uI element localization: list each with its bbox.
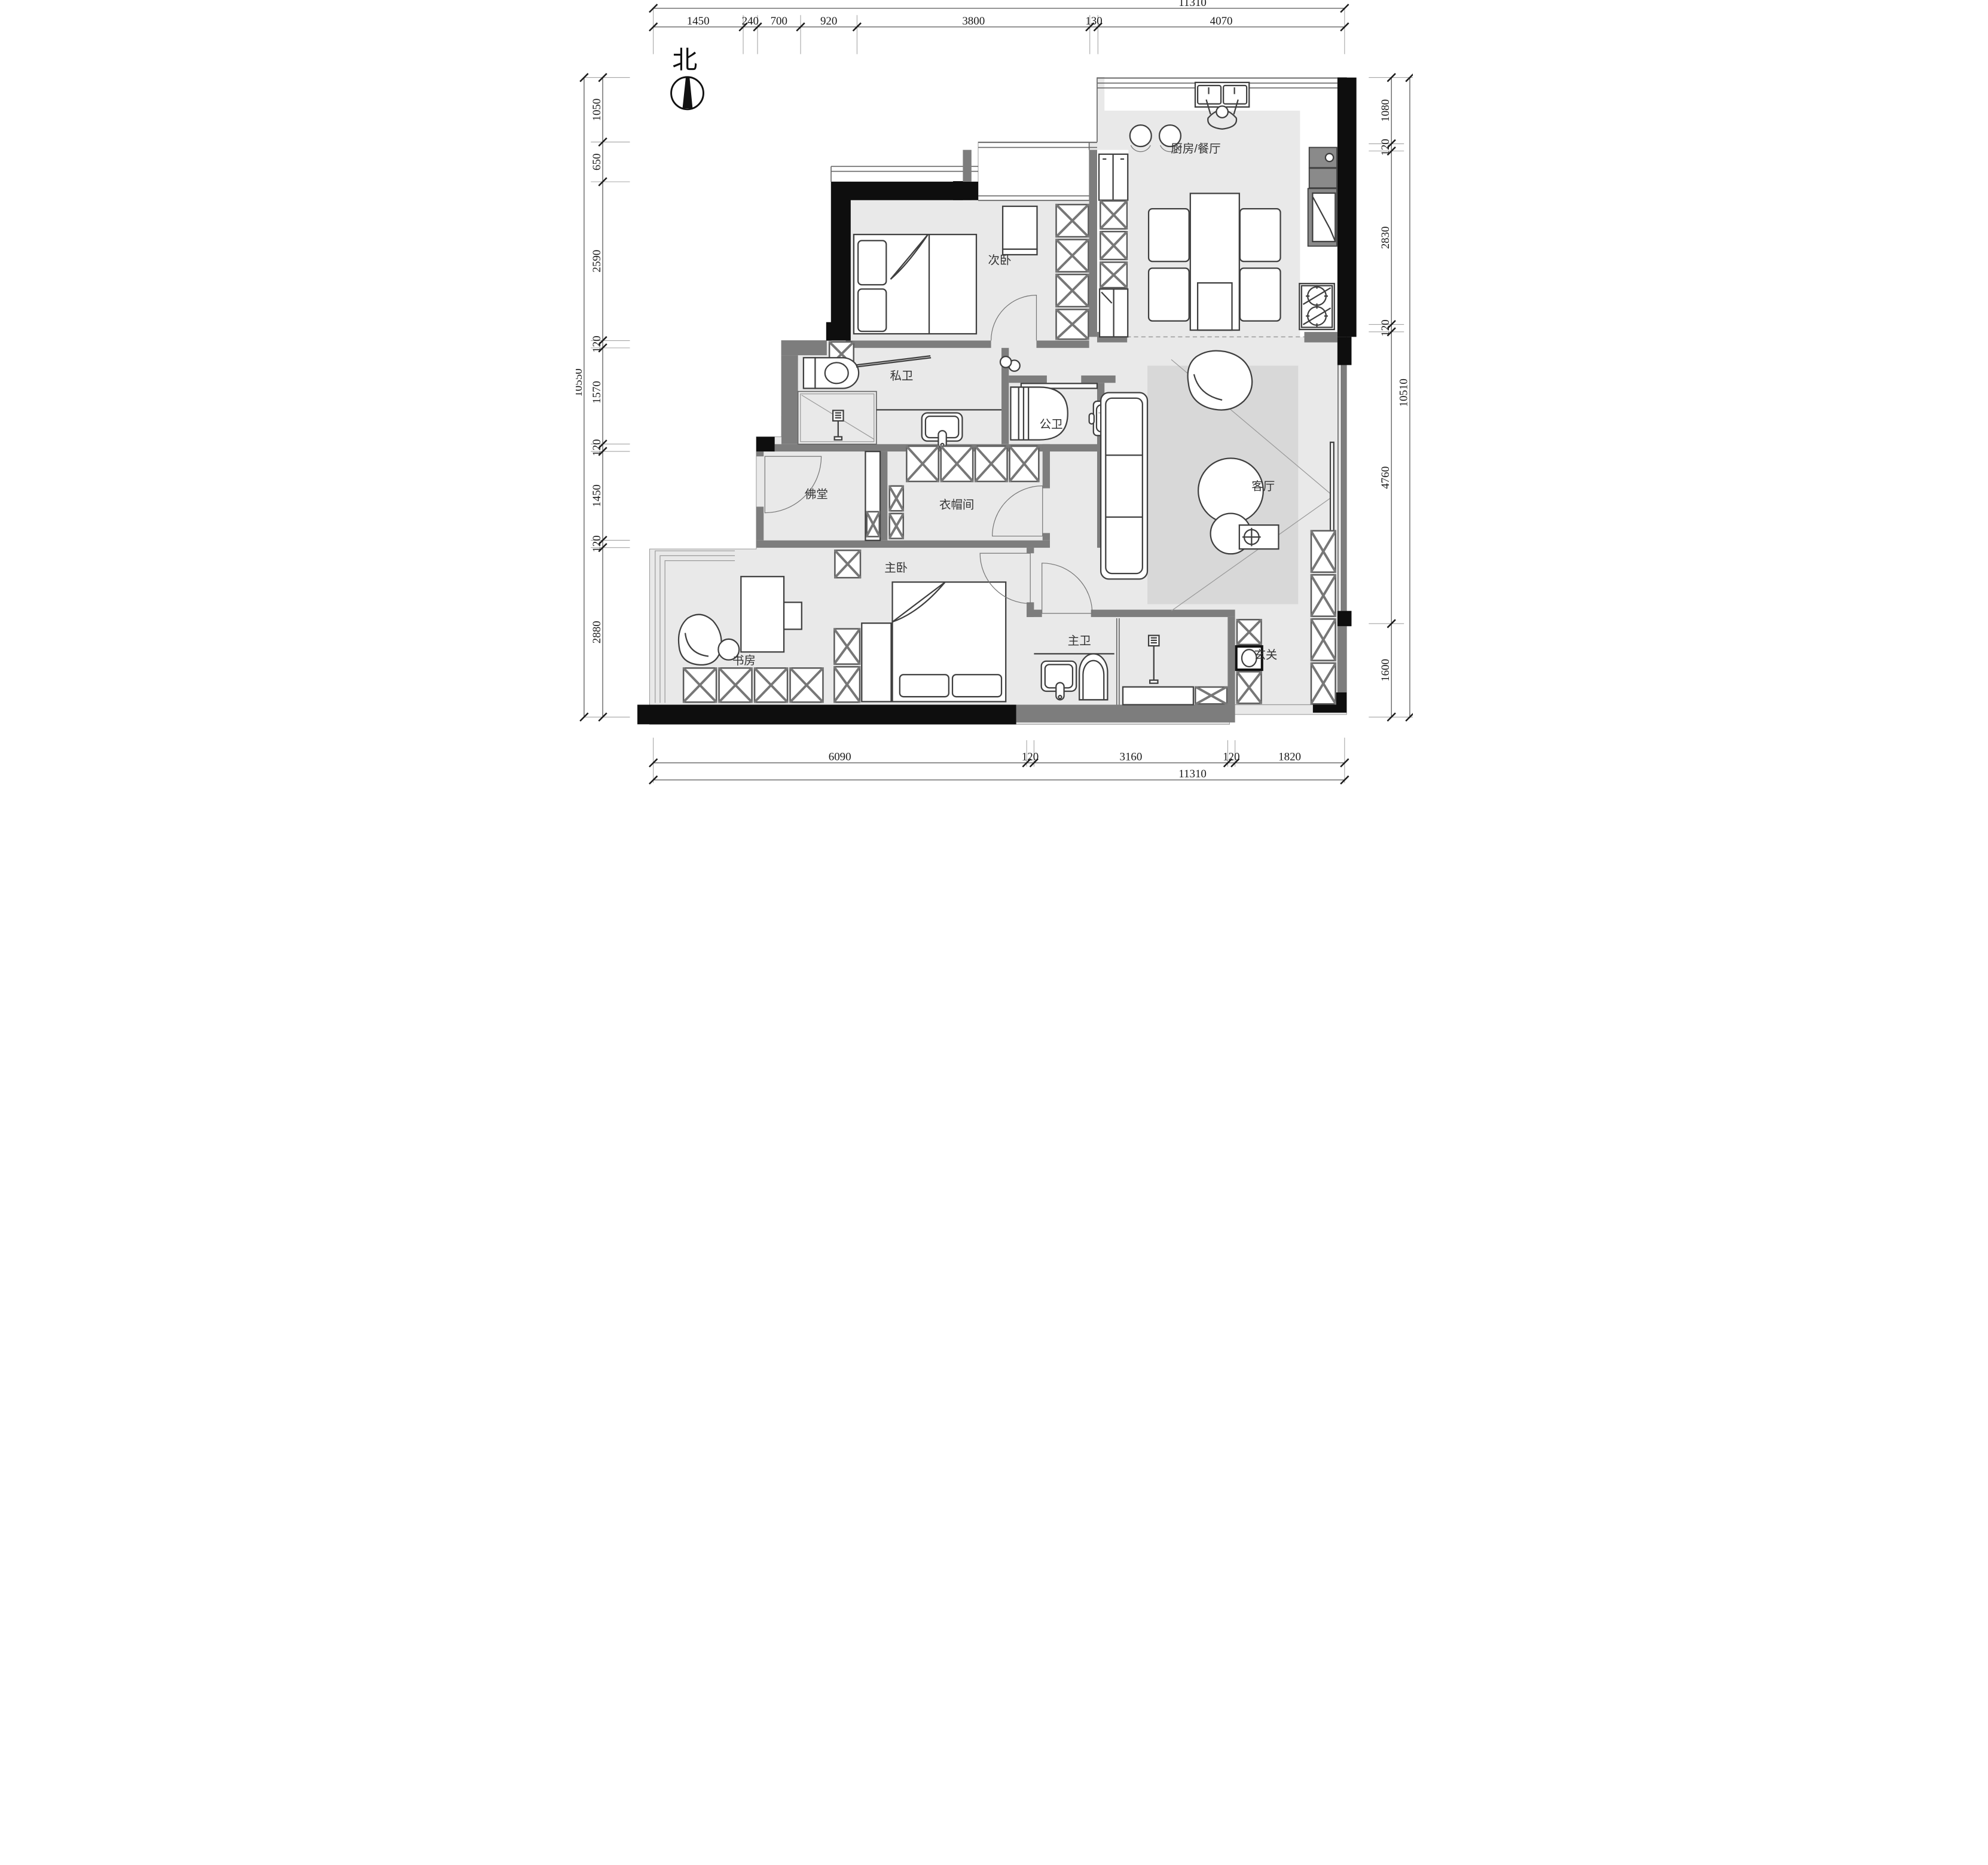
appliance-unit: [1309, 168, 1336, 188]
flush-handle: [1089, 414, 1094, 424]
dim-top-seg: 3800: [962, 15, 985, 28]
room-label-entry: 玄关: [1254, 649, 1277, 662]
dim-right-seg: 2830: [1379, 227, 1391, 249]
dining-chair: [1239, 268, 1280, 321]
shoe-cabinet-icon: [1310, 663, 1336, 705]
dim-left-total: 10550: [576, 368, 585, 396]
dining-chair: [1149, 268, 1189, 321]
bookshelf-icon: [682, 667, 716, 703]
wardrobe-icon: [940, 445, 973, 483]
dim-bottom-seg: 120: [1223, 751, 1239, 764]
balcony-recess: [978, 142, 1089, 200]
cabinet-icon: [866, 511, 880, 538]
closet-icon: [833, 628, 860, 665]
dim-top-total: 11310: [1178, 0, 1207, 9]
dim-bottom: 6090 120 3160 120 1820 11310: [649, 738, 1348, 784]
dim-left-seg: 120: [590, 335, 603, 352]
closet-icon: [834, 550, 861, 578]
dim-left: 1050 650 2590 120 1570 120 1450 120 2880…: [576, 74, 630, 721]
dim-left-seg: 1570: [590, 381, 603, 404]
desk-chair: [784, 602, 802, 629]
dim-left-seg: 120: [590, 535, 603, 552]
nightstand: [862, 623, 891, 701]
north-indicator: 北: [671, 47, 703, 109]
bay-window-lines: [831, 166, 978, 182]
dim-bottom-seg: 1820: [1278, 751, 1301, 764]
wardrobe-icon: [1055, 309, 1089, 340]
floor-plan-canvas: 北: [576, 0, 1413, 785]
pillow: [899, 674, 948, 697]
dim-top-seg: 1450: [686, 15, 709, 28]
dining-chair: [1149, 209, 1189, 261]
dim-bottom-seg: 6090: [828, 751, 851, 764]
dim-left-seg: 2880: [590, 621, 603, 643]
cabinet-icon: [1100, 200, 1128, 230]
room-label-study: 书房: [732, 654, 755, 667]
wardrobe-icon: [888, 513, 904, 539]
wardrobe-icon: [906, 445, 939, 483]
dim-top-seg: 700: [770, 15, 787, 28]
cabinet-icon: [1194, 686, 1227, 705]
cabinet-icon: [1236, 671, 1262, 704]
pillow: [858, 240, 886, 285]
cabinet-icon: [1100, 231, 1128, 260]
dim-right-seg: 120: [1379, 319, 1391, 336]
dim-right-seg: 120: [1379, 139, 1391, 155]
shoe-cabinet-icon: [1310, 574, 1336, 617]
dim-bottom-total: 11310: [1178, 768, 1207, 780]
dim-left-seg: 120: [590, 439, 603, 456]
plan: 次卧 厨房/餐厅 私卫 公卫 佛堂 衣帽间 客厅 主卧 书房 主卫 玄关: [637, 78, 1357, 725]
wardrobe-icon: [1055, 239, 1089, 272]
room-label-cloakroom: 衣帽间: [939, 498, 973, 511]
wardrobe-icon: [888, 485, 904, 511]
dim-bottom-seg: 120: [1021, 751, 1038, 764]
room-label-master-bedroom: 主卧: [884, 561, 908, 575]
north-compass-icon: [671, 77, 703, 109]
dim-left-seg: 650: [590, 154, 603, 170]
dim-right-seg: 1080: [1379, 99, 1391, 122]
dim-bottom-seg: 3160: [1119, 751, 1142, 764]
wardrobe-icon: [1055, 274, 1089, 307]
sofa: [1101, 393, 1147, 579]
room-label-master-bath: 主卫: [1067, 634, 1091, 648]
room-label-buddha-hall: 佛堂: [804, 488, 827, 501]
dim-right: 1080 120 2830 120 4760 1600 10510: [1369, 74, 1413, 721]
dim-right-total: 10510: [1397, 379, 1410, 407]
room-label-secondary-bedroom: 次卧: [988, 254, 1011, 267]
shoe-cabinet-icon: [1310, 618, 1336, 661]
bookshelf-icon: [753, 667, 787, 703]
dim-left-seg: 1050: [590, 99, 603, 121]
dim-left-seg: 2590: [590, 250, 603, 273]
dining-chair: [1239, 209, 1280, 261]
bookshelf-icon: [718, 667, 752, 703]
dim-top-seg: 130: [1085, 15, 1102, 28]
room-label-public-bath: 公卫: [1039, 418, 1062, 431]
dim-top-seg: 920: [820, 15, 836, 28]
floor-plan-page: 北: [576, 0, 1413, 785]
wardrobe-icon: [974, 445, 1007, 483]
north-label: 北: [672, 47, 697, 75]
cooktop: [1299, 283, 1334, 329]
dim-top-seg: 4070: [1210, 15, 1232, 28]
closet-icon: [833, 666, 860, 703]
room-label-kitchen-dining: 厨房/餐厅: [1171, 142, 1220, 155]
shoe-cabinet-icon: [1310, 530, 1336, 573]
desk: [1003, 206, 1037, 249]
low-cabinet: [1123, 687, 1193, 705]
cabinet-icon: [1100, 261, 1128, 288]
dim-right-seg: 1600: [1379, 659, 1391, 682]
wardrobe-icon: [1055, 204, 1089, 237]
downlight-icon: [1000, 356, 1010, 367]
bar-stool: [1129, 125, 1151, 146]
room-label-living-room: 客厅: [1251, 480, 1275, 493]
pillow: [858, 289, 886, 331]
wardrobe-icon: [1009, 445, 1039, 483]
bookshelf-icon: [789, 667, 823, 703]
dim-top: 11310 1450 240 700 920 3800 130 4070: [649, 0, 1348, 54]
dim-top-seg: 240: [741, 15, 758, 28]
pillow: [952, 674, 1001, 697]
toilet-tank: [803, 358, 814, 388]
cabinet-icon: [1236, 619, 1262, 645]
room-label-private-bath: 私卫: [890, 370, 913, 383]
armchair: [1187, 351, 1252, 410]
dim-right-seg: 4760: [1379, 466, 1391, 489]
dim-left-seg: 1450: [590, 484, 603, 507]
study-desk: [741, 576, 784, 652]
